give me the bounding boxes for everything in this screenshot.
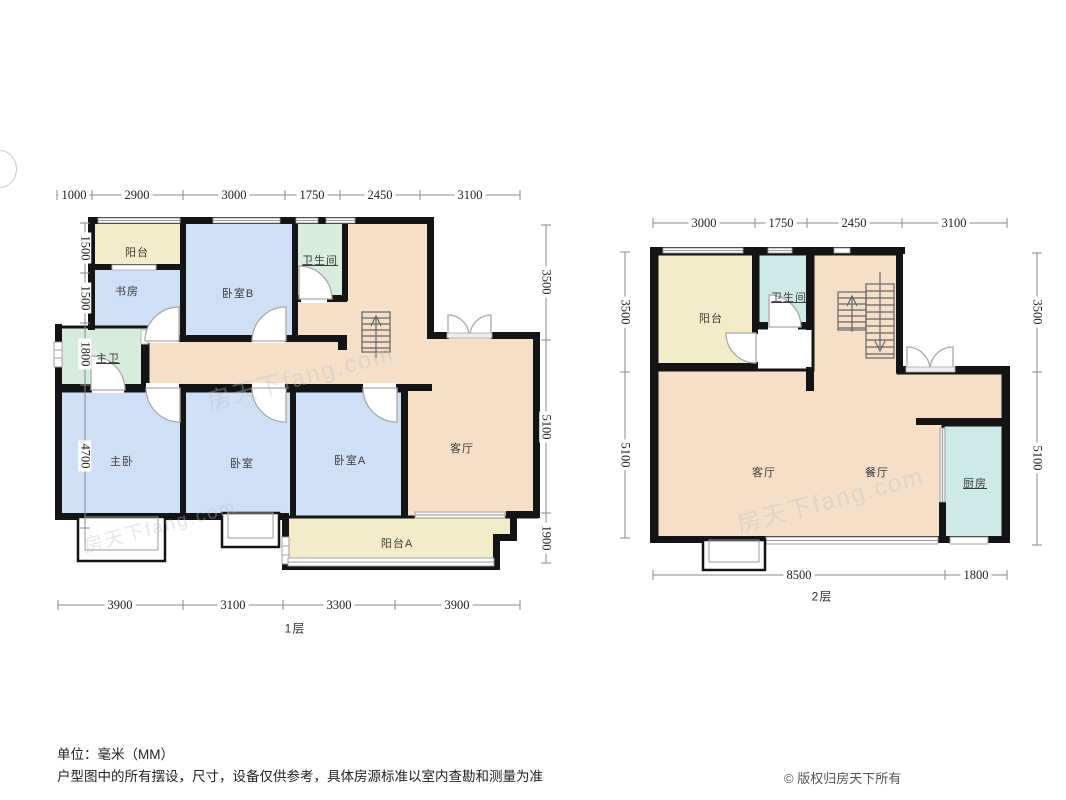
dim-f2-top-2: 2450 [839, 217, 870, 230]
room-label-living2: 客厅 [752, 464, 776, 480]
plan-graphics [0, 0, 1066, 800]
floor1-bay-windows [78, 513, 279, 561]
dim-f2-top-3: 3100 [939, 217, 970, 230]
dim-f1-bottom-3: 3900 [442, 599, 473, 612]
dim-f1-left-1: 1500 [79, 283, 92, 314]
dim-f1-right-2: 1900 [540, 523, 553, 554]
room-label-dining: 餐厅 [865, 464, 889, 480]
unit-note: 单位：毫米（MM） [57, 743, 174, 763]
dim-f1-left-2: 1800 [79, 339, 92, 370]
dim-f1-left-0: 1500 [79, 233, 92, 264]
floor1-entry-door [447, 311, 492, 338]
dim-f2-bottom-1: 1800 [961, 569, 992, 582]
room-label-living1: 客厅 [450, 440, 474, 456]
room-label-bedroom-a: 卧室A [334, 452, 366, 468]
dim-f1-top-0: 1000 [59, 189, 90, 202]
room-label-master-bedroom: 主卧 [110, 453, 134, 469]
floor2-bay-window [703, 540, 765, 570]
dim-f2-left-1: 5100 [619, 440, 632, 471]
dim-f1-top-3: 1750 [297, 189, 328, 202]
room-label-kitchen: 厨房 [963, 475, 987, 491]
room-label-bath2: 卫生间 [771, 289, 807, 305]
room-label-balcony-n: 阳台 [125, 244, 149, 260]
dim-f2-right-1: 5100 [1031, 443, 1044, 474]
dim-f1-left-3: 4700 [79, 441, 92, 472]
dim-f1-bottom-2: 3300 [324, 599, 355, 612]
room-label-master-bath: 主卫 [96, 350, 120, 366]
dim-f1-right-0: 3500 [540, 267, 553, 298]
room-label-balcony-a: 阳台A [381, 535, 413, 551]
dim-f1-right-1: 5100 [540, 412, 553, 443]
room-label-bedroom-b: 卧室B [222, 285, 254, 301]
dim-f2-right-0: 3500 [1031, 297, 1044, 328]
dim-f1-bottom-0: 3900 [105, 599, 136, 612]
dim-f2-top-1: 1750 [766, 217, 797, 230]
dim-f2-left-0: 3500 [619, 297, 632, 328]
dim-f1-top-4: 2450 [365, 189, 396, 202]
floor2-plan [620, 218, 1042, 580]
dim-f1-bottom-1: 3100 [218, 599, 249, 612]
room-label-study: 书房 [115, 283, 139, 299]
disclaimer-note: 户型图中的所有摆设，尺寸，设备仅供参考，具体房源标准以室内查勘和测量为准 [57, 765, 543, 785]
dim-f2-bottom-0: 8500 [784, 569, 815, 582]
room-label-balcony2: 阳台 [699, 310, 723, 326]
room-label-bedroom: 卧室 [230, 455, 254, 471]
floorplan-page: { "page": { "unit_note": "单位：毫米（MM）", "d… [0, 0, 1066, 800]
floor2-entry-door [906, 344, 955, 372]
dim-f2-top-0: 3000 [689, 217, 720, 230]
dim-f1-top-5: 3100 [455, 189, 486, 202]
floor2-label: 2层 [812, 588, 833, 605]
copyright-note: © 版权归房天下所有 [784, 768, 901, 787]
room-label-bath1: 卫生间 [302, 252, 338, 268]
floor1-label: 1层 [285, 620, 306, 637]
dim-f1-top-1: 2900 [122, 189, 153, 202]
dim-f1-top-2: 3000 [219, 189, 250, 202]
